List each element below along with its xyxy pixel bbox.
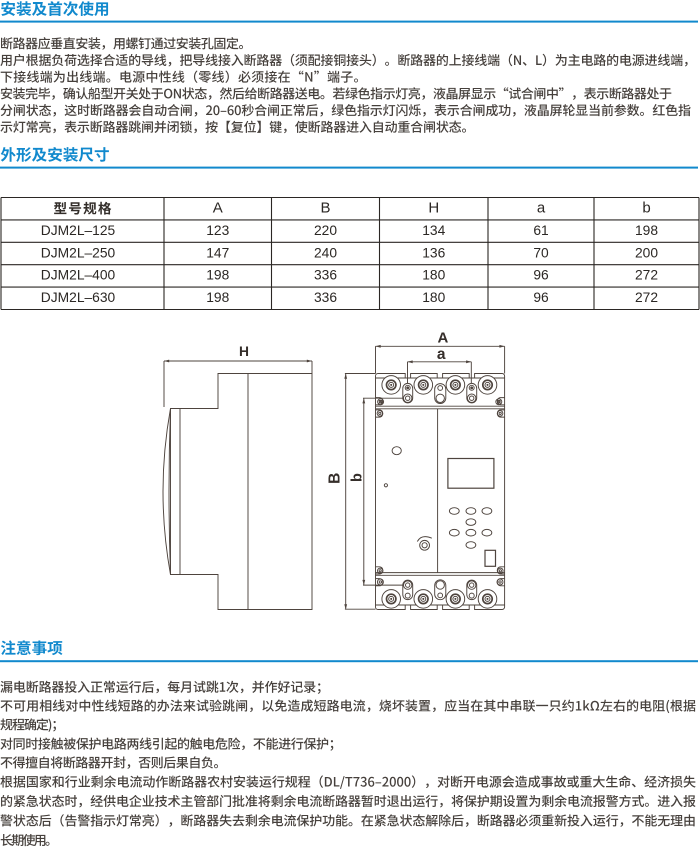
svg-text:180: 180 — [422, 268, 445, 283]
svg-text:H: H — [428, 200, 439, 217]
svg-text:220: 220 — [314, 223, 337, 238]
svg-text:200: 200 — [635, 245, 658, 260]
svg-text:A: A — [213, 200, 223, 217]
svg-text:272: 272 — [635, 290, 658, 305]
svg-text:70: 70 — [533, 245, 549, 260]
svg-text:a: a — [537, 200, 546, 217]
svg-text:96: 96 — [533, 290, 549, 305]
svg-text:DJM2L–400: DJM2L–400 — [41, 268, 116, 283]
svg-text:B: B — [320, 200, 330, 217]
svg-text:240: 240 — [314, 245, 337, 260]
svg-text:b: b — [349, 473, 365, 482]
svg-text:61: 61 — [533, 223, 548, 238]
svg-text:198: 198 — [635, 223, 658, 238]
svg-text:198: 198 — [206, 290, 229, 305]
svg-text:96: 96 — [533, 268, 549, 283]
svg-text:180: 180 — [422, 290, 445, 305]
svg-text:336: 336 — [314, 268, 337, 283]
svg-text:136: 136 — [422, 245, 445, 260]
svg-text:272: 272 — [635, 268, 658, 283]
svg-text:A: A — [437, 330, 448, 347]
svg-text:198: 198 — [206, 268, 229, 283]
svg-text:B: B — [327, 473, 344, 484]
svg-text:123: 123 — [206, 223, 229, 238]
svg-text:b: b — [642, 200, 650, 217]
svg-text:DJM2L–125: DJM2L–125 — [41, 223, 116, 238]
svg-text:a: a — [437, 346, 446, 363]
svg-text:134: 134 — [422, 223, 445, 238]
svg-text:H: H — [239, 344, 249, 359]
svg-text:147: 147 — [206, 245, 229, 260]
svg-text:DJM2L–630: DJM2L–630 — [41, 290, 116, 305]
svg-text:336: 336 — [314, 290, 337, 305]
svg-text:DJM2L–250: DJM2L–250 — [41, 245, 116, 260]
